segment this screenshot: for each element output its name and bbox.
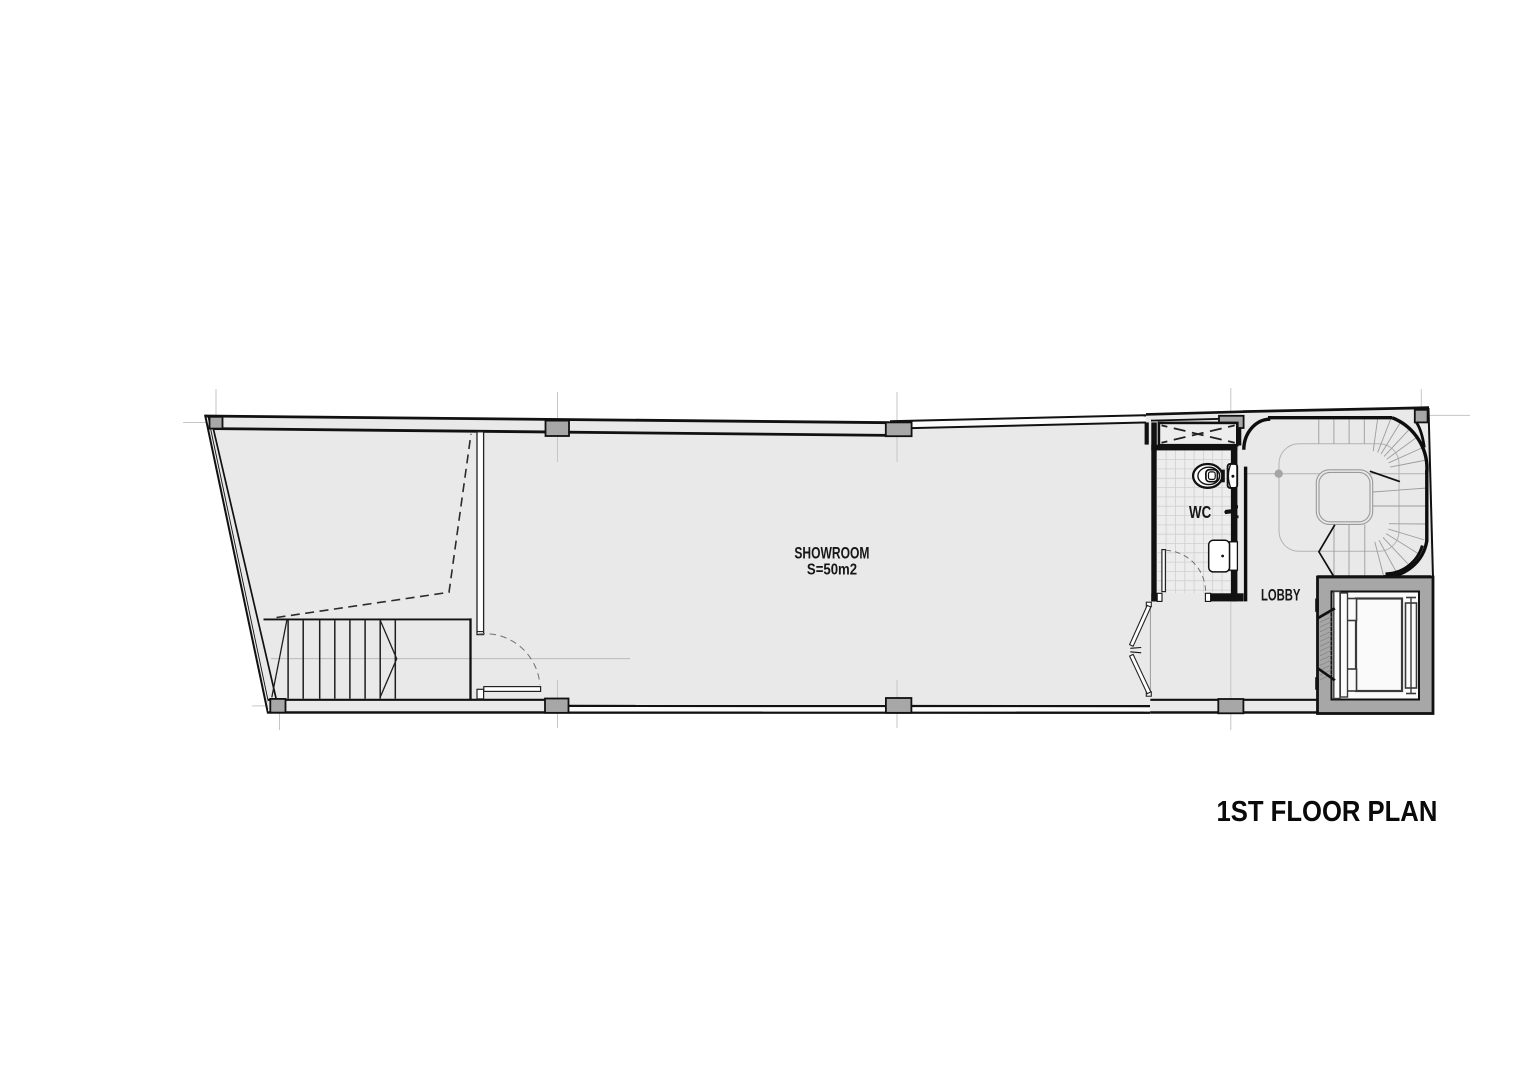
- svg-text:WC: WC: [1189, 503, 1211, 522]
- svg-text:SHOWROOM: SHOWROOM: [794, 545, 869, 563]
- svg-text:1ST FLOOR PLAN: 1ST FLOOR PLAN: [1217, 795, 1438, 828]
- svg-text:LOBBY: LOBBY: [1261, 586, 1301, 605]
- svg-text:S=50m2: S=50m2: [807, 562, 857, 579]
